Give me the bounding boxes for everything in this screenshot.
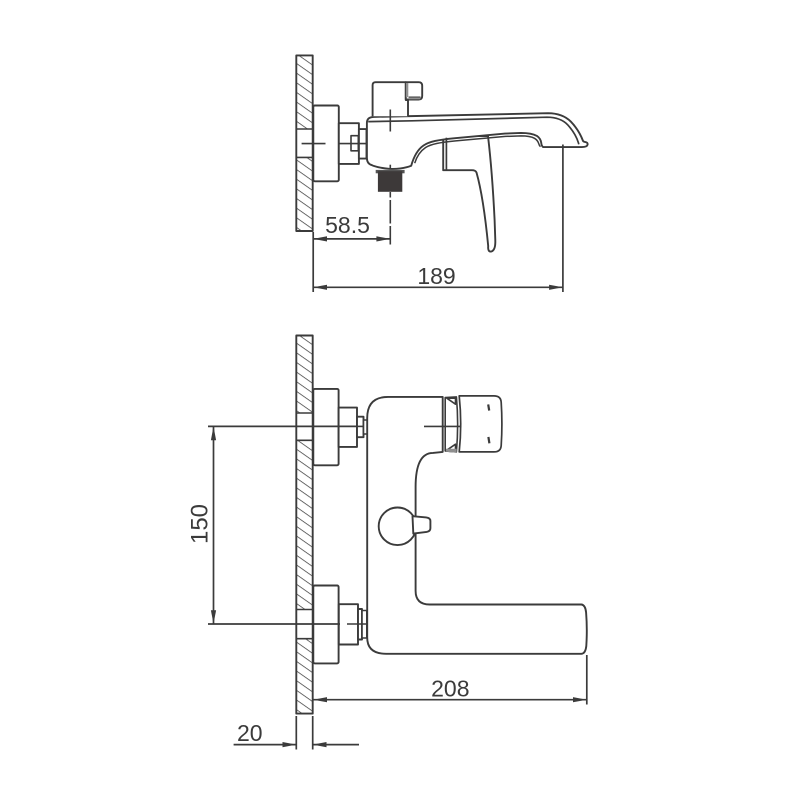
svg-text:150: 150 [187,504,214,544]
svg-text:58.5: 58.5 [325,212,370,238]
svg-text:189: 189 [417,263,455,289]
svg-text:208: 208 [431,676,469,702]
svg-text:20: 20 [237,720,263,746]
